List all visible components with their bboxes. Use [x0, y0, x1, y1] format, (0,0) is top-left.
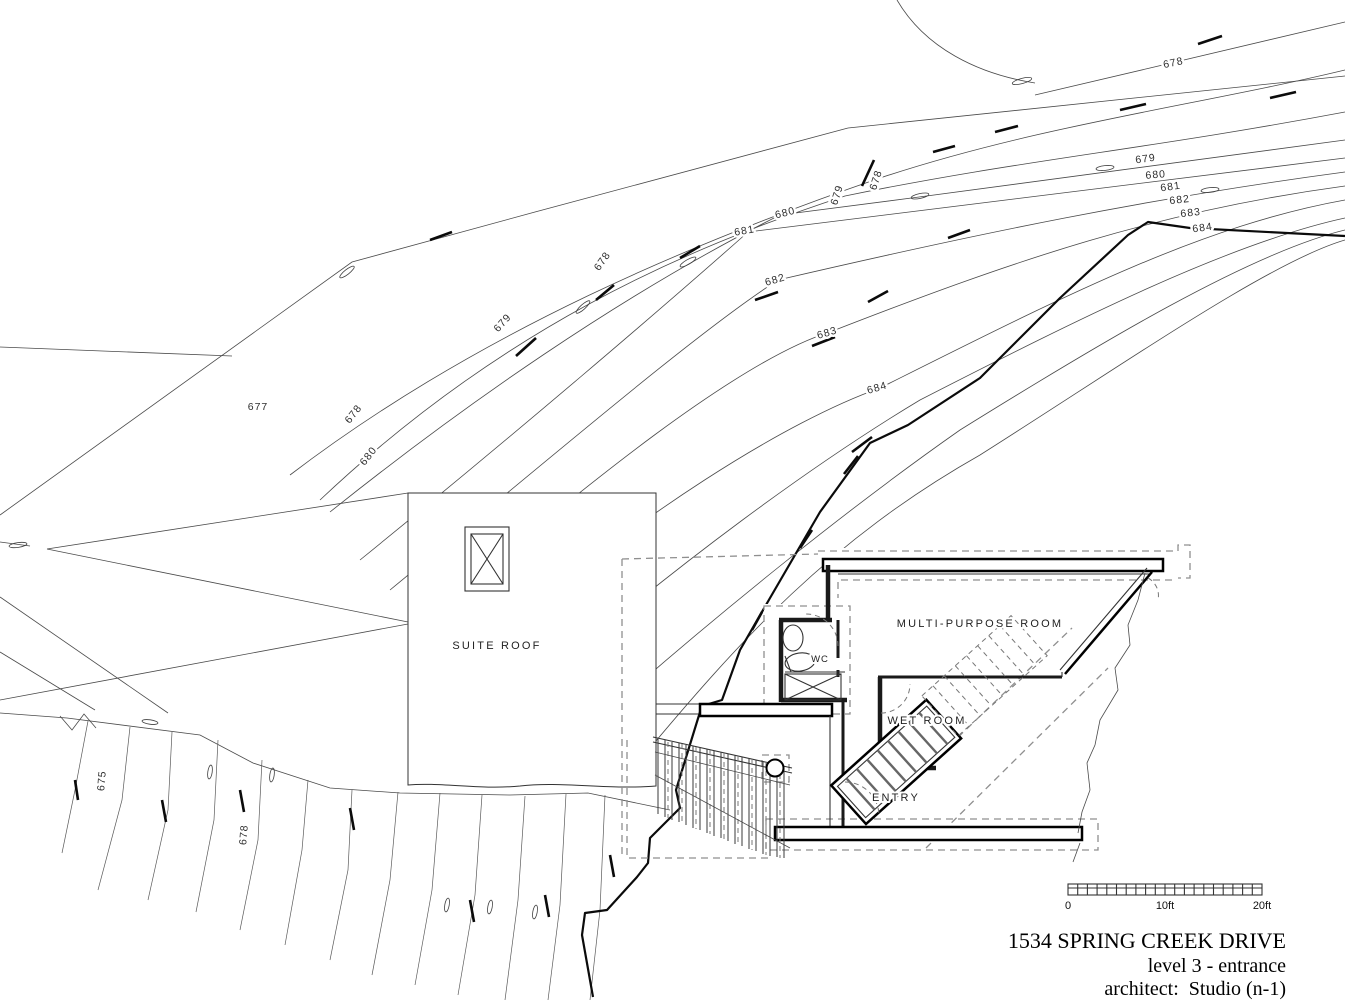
contour-label: 684 [866, 380, 889, 397]
room-label-multi-purpose: MULTI-PURPOSE ROOM [897, 618, 1064, 630]
sheet-architect-line: architect: Studio (n-1) [1104, 978, 1286, 1000]
contour-label: 683 [816, 325, 839, 342]
contour-label: 684 [1192, 221, 1214, 236]
sheet-level-subtitle: level 3 - entrance [1148, 955, 1286, 977]
terrain-marks [9, 36, 1296, 922]
contour-label: 681 [733, 223, 755, 238]
south-wall-bar [775, 827, 1082, 840]
room-label-wet-room: WET ROOM [887, 715, 966, 727]
contour-label: 679 [1135, 152, 1157, 167]
site-plan-svg: SUITE ROOF MULTI-PURPOSE ROOM WC WET ROO… [0, 0, 1345, 1000]
contour-label: 680 [774, 205, 797, 222]
scale-bar: 0 10ft 20ft [1065, 884, 1271, 912]
north-wall-bar [823, 559, 1163, 571]
contour-label: 677 [248, 401, 269, 413]
room-label-entry: ENTRY [872, 792, 920, 804]
column-marker [767, 760, 784, 777]
title-block: 1534 SPRING CREEK DRIVE level 3 - entran… [1008, 928, 1286, 1000]
scale-zero-label: 0 [1065, 900, 1071, 912]
contour-label: 679 [491, 311, 514, 334]
contour-label: 678 [1162, 55, 1185, 71]
contour-label: 679 [828, 183, 846, 206]
contour-label: 678 [592, 249, 614, 273]
scale-ten-label: 10ft [1156, 900, 1174, 912]
site-plan-sheet: SUITE ROOF MULTI-PURPOSE ROOM WC WET ROO… [0, 0, 1345, 1000]
contour-label: 675 [95, 770, 109, 791]
contour-label: 681 [1160, 180, 1182, 195]
scale-twenty-label: 20ft [1253, 900, 1271, 912]
contour-label: 678 [237, 824, 251, 845]
contour-label: 680 [358, 444, 380, 468]
room-label-suite-roof: SUITE ROOF [452, 640, 541, 652]
contour-label: 682 [1169, 193, 1191, 207]
room-label-wc: WC [811, 654, 829, 665]
contour-label: 682 [764, 272, 787, 289]
contour-label: 678 [343, 402, 365, 426]
sheet-address-title: 1534 SPRING CREEK DRIVE [1008, 928, 1286, 953]
contour-label: 683 [1180, 206, 1202, 220]
contour-label: 680 [1145, 168, 1166, 182]
contour-lines [0, 0, 1345, 1000]
